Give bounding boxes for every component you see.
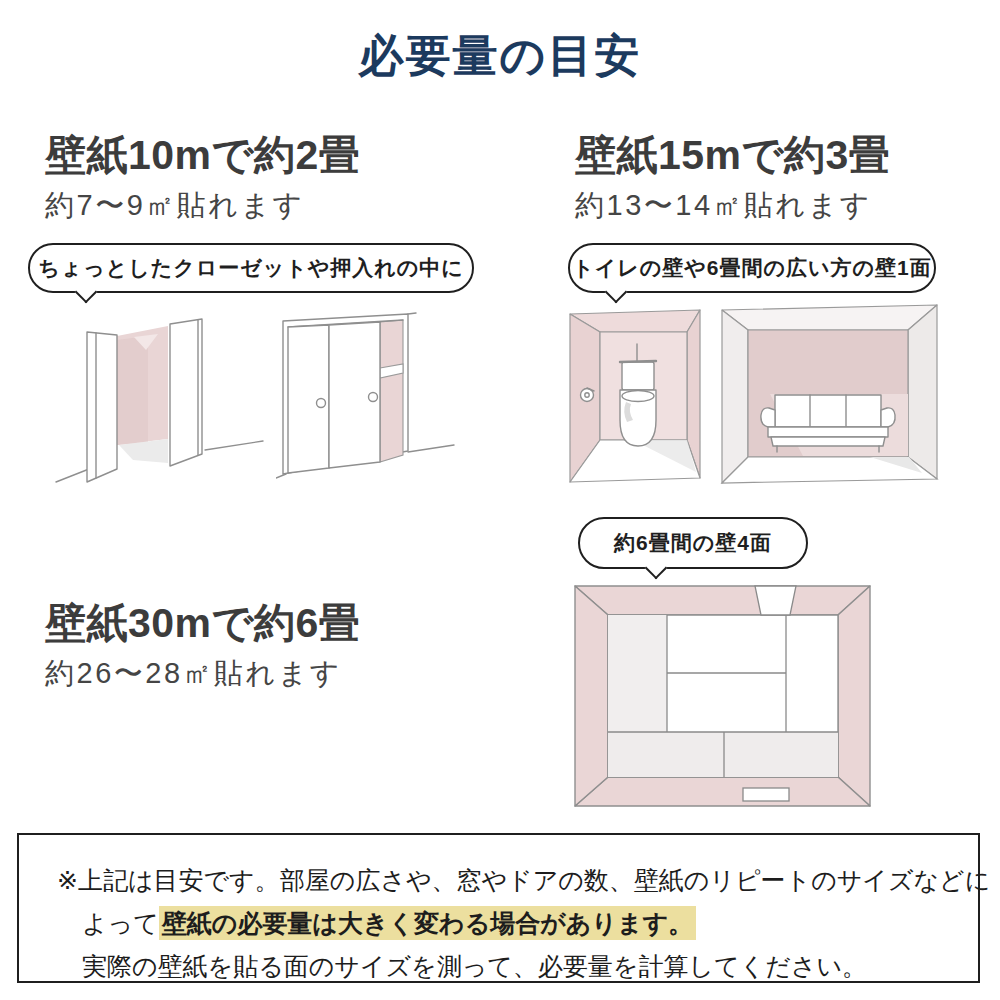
speech-bubble-15m: トイレの壁や6畳間の広い方の壁1面 [568,243,936,293]
closet-open-illustration [55,312,265,488]
notice-highlight: 壁紙の必要量は大きく変わる場合があります。 [159,906,696,940]
speech-bubble-10m-label: ちょっとしたクローゼットや押入れの中に [38,254,463,282]
notice-line-1: ※上記は目安です。部屋の広さや、窓やドアの数、壁紙のリピートのサイズなどに [57,859,958,902]
subheading-15m: 約13〜14㎡貼れます [575,186,872,226]
notice-box: ※上記は目安です。部屋の広さや、窓やドアの数、壁紙のリピートのサイズなどに よっ… [17,833,980,983]
wallpaper-required-amount-guide: 必要量の目安 壁紙10mで約2畳 約7〜9㎡貼れます ちょっとしたクローゼットや… [0,0,1000,1000]
notice-line-3: 実際の壁紙を貼る面のサイズを測って、必要量を計算してください。 [82,945,958,988]
page-title: 必要量の目安 [0,26,1000,86]
closet-sliding-illustration [276,306,456,482]
door-marker-top [755,586,796,615]
subheading-30m: 約26〜28㎡貼れます [45,654,342,694]
heading-10m: 壁紙10mで約2畳 [45,128,360,183]
speech-bubble-6tatami-label: 約6畳間の壁4面 [614,529,772,557]
toilet-paper-holder-icon [581,388,595,402]
speech-bubble-6tatami: 約6畳間の壁4面 [578,517,808,569]
speech-bubble-10m: ちょっとしたクローゼットや押入れの中に [28,243,474,293]
subheading-10m: 約7〜9㎡貼れます [45,186,305,226]
toilet-room-illustration [565,306,705,486]
speech-bubble-15m-label: トイレの壁や6畳間の広い方の壁1面 [572,254,931,282]
notice-line-2-prefix: よって [82,909,159,937]
room-top-view-illustration [572,582,874,810]
sofa-icon [761,395,895,452]
heading-30m: 壁紙30mで約6畳 [45,596,360,651]
sofa-room-illustration [718,302,942,486]
heading-15m: 壁紙15mで約3畳 [575,128,890,183]
door-marker-bottom [743,788,789,801]
notice-line-2: よって壁紙の必要量は大きく変わる場合があります。 [82,902,958,945]
